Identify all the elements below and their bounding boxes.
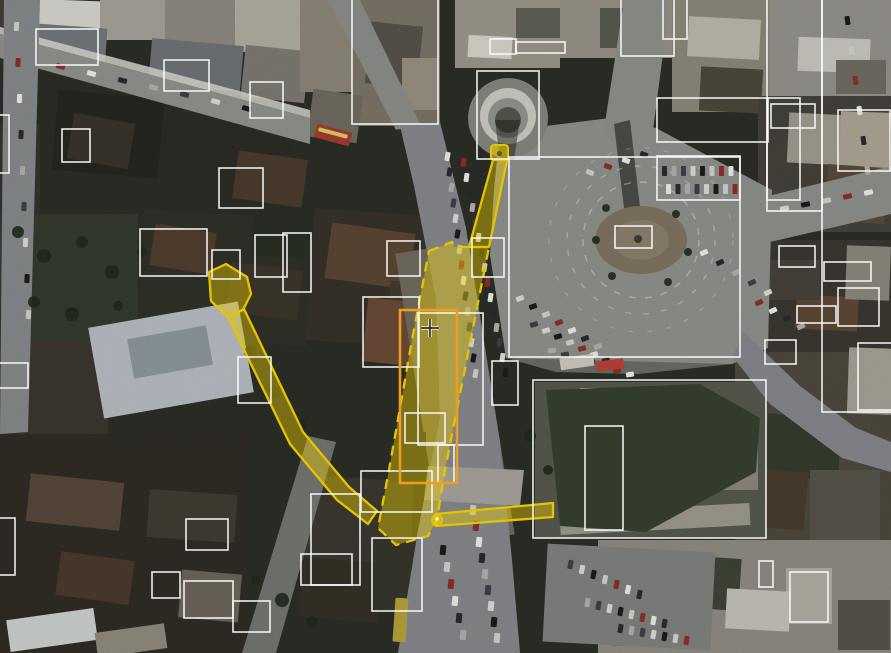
tower-marker-dot: [497, 151, 502, 156]
map-canvas[interactable]: [0, 0, 891, 653]
bar-marker-dot: [435, 517, 438, 520]
satellite-annotation-view: [0, 0, 891, 653]
